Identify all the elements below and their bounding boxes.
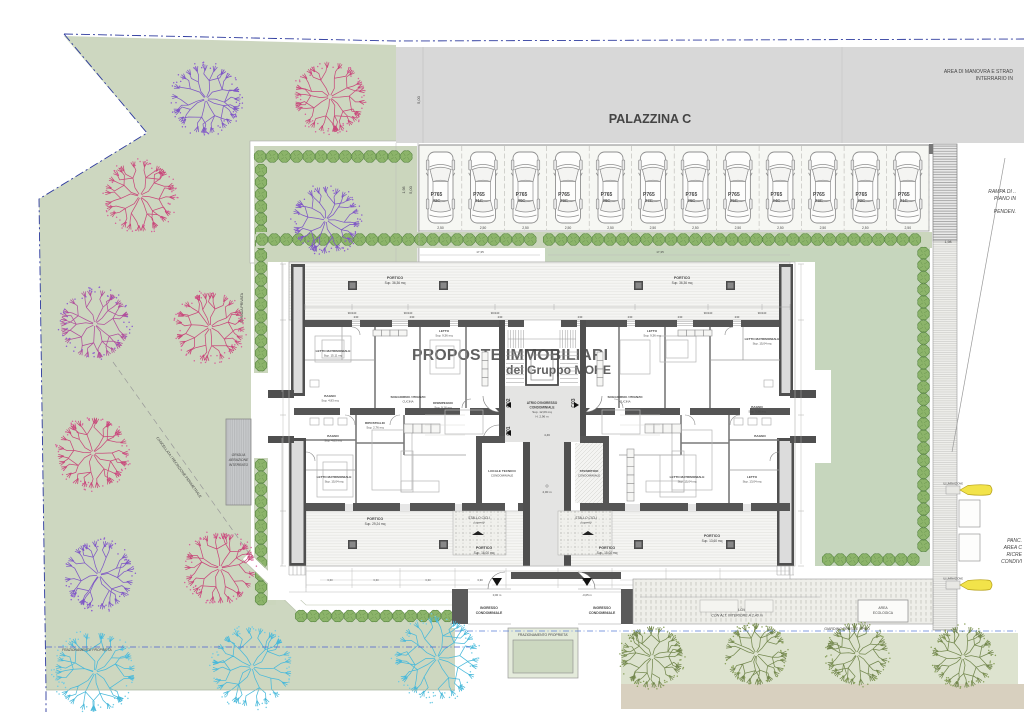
svg-text:1,98: 1,98 (402, 187, 406, 194)
svg-text:Sup. 13,04 mq: Sup. 13,04 mq (743, 479, 762, 483)
svg-text:Sup. 29,24 mq: Sup. 29,24 mq (365, 522, 386, 526)
svg-text:230: 230 (354, 315, 359, 319)
svg-text:27C: 27C (645, 198, 653, 203)
svg-text:230: 230 (410, 315, 415, 319)
svg-text:90/240: 90/240 (704, 311, 713, 315)
svg-text:PIANO IN: PIANO IN (994, 196, 1016, 202)
svg-text:PORTICO: PORTICO (367, 517, 384, 521)
svg-text:GIARDINO PENSILE SPILO: GIARDINO PENSILE SPILO (824, 627, 870, 631)
svg-text:2,50: 2,50 (437, 226, 444, 230)
svg-text:230: 230 (498, 315, 503, 319)
svg-text:0,00 m: 0,00 m (493, 593, 502, 597)
svg-text:CONDOMINIALE: CONDOMINIALE (530, 406, 555, 410)
svg-text:22C: 22C (857, 198, 865, 203)
svg-text:AERAZIONE: AERAZIONE (228, 458, 249, 462)
svg-text:2,50: 2,50 (692, 226, 699, 230)
svg-text:INGRESSO: INGRESSO (480, 606, 498, 610)
svg-text:CUCINA: CUCINA (402, 399, 413, 403)
svg-text:FRAZIONAMENTO PROPRIETA': FRAZIONAMENTO PROPRIETA' (518, 633, 569, 637)
svg-text:230: 230 (735, 315, 740, 319)
svg-text:(coperti): (coperti) (473, 521, 484, 525)
svg-text:(coperti): (coperti) (580, 521, 591, 525)
svg-text:PANC.: PANC. (1007, 538, 1022, 544)
svg-text:PORTICO: PORTICO (476, 546, 493, 550)
svg-text:26C: 26C (688, 198, 696, 203)
svg-text:Sup. 15,11 mq: Sup. 15,11 mq (324, 353, 343, 357)
svg-text:CONDOMINIALE: CONDOMINIALE (589, 611, 616, 615)
svg-text:5,00: 5,00 (408, 185, 413, 194)
svg-text:4,46: 4,46 (544, 433, 550, 437)
svg-text:RAMPA DI ..: RAMPA DI .. (988, 189, 1016, 195)
svg-text:90/240: 90/240 (404, 311, 413, 315)
svg-text:Sup. 3,96 mq: Sup. 3,96 mq (748, 409, 766, 413)
svg-text:PALAZZINA C: PALAZZINA C (609, 112, 692, 126)
svg-text:Sup. 36,36 mq: Sup. 36,36 mq (385, 281, 406, 285)
svg-text:2,50: 2,50 (904, 226, 911, 230)
svg-text:CON ALT. INTERIORE A 2,40 m: CON ALT. INTERIORE A 2,40 m (711, 614, 763, 618)
svg-text:230: 230 (628, 315, 633, 319)
svg-text:Sup. 9,16 mq: Sup. 9,16 mq (434, 405, 452, 409)
svg-text:Sup. 15,04 mq: Sup. 15,04 mq (753, 341, 772, 345)
svg-text:FRAZIONAMENTO PROPRIETA: FRAZIONAMENTO PROPRIETA (62, 648, 112, 652)
svg-text:2,50: 2,50 (522, 226, 529, 230)
svg-text:5,00: 5,00 (416, 95, 421, 104)
svg-text:3,30: 3,30 (477, 578, 483, 582)
svg-text:CONDOMINIALE: CONDOMINIALE (476, 611, 503, 615)
svg-text:BAGNO: BAGNO (754, 434, 766, 438)
svg-text:23C: 23C (815, 198, 823, 203)
svg-text:230: 230 (578, 315, 583, 319)
svg-text:17,35: 17,35 (656, 250, 664, 254)
svg-text:25C: 25C (730, 198, 738, 203)
svg-text:Sup. 12,09 mq: Sup. 12,09 mq (532, 410, 552, 414)
svg-text:STALLO CICLI: STALLO CICLI (575, 516, 597, 520)
svg-text:RICRE: RICRE (1006, 552, 1022, 558)
svg-text:2,50: 2,50 (650, 226, 657, 230)
svg-text:Sup. 15,00 mq: Sup. 15,00 mq (597, 551, 618, 555)
svg-text:Sup. 16,00 mq: Sup. 16,00 mq (474, 551, 495, 555)
svg-text:21C: 21C (900, 198, 908, 203)
svg-text:29C: 29C (560, 198, 568, 203)
svg-text:CONDOMINIALE: CONDOMINIALE (578, 473, 600, 477)
svg-text:17,35: 17,35 (476, 250, 484, 254)
svg-text:Sup. 2,76 mq: Sup. 2,76 mq (366, 425, 384, 429)
svg-text:2,50: 2,50 (820, 226, 827, 230)
svg-text:2,50: 2,50 (735, 226, 742, 230)
svg-text:CONDOMINIALE: CONDOMINIALE (491, 473, 513, 477)
svg-text:2,50: 2,50 (565, 226, 572, 230)
svg-text:Sup. 4,93 mq: Sup. 4,93 mq (321, 398, 339, 402)
svg-text:Sup. 36,36 mq: Sup. 36,36 mq (672, 281, 693, 285)
svg-text:INTERRARIO IN: INTERRARIO IN (976, 76, 1014, 82)
svg-text:PORTICO: PORTICO (599, 546, 616, 550)
svg-text:PENDEN.: PENDEN. (994, 209, 1016, 215)
svg-text:90/240: 90/240 (348, 311, 357, 315)
svg-text:PORTICO: PORTICO (704, 534, 721, 538)
svg-text:Sup. 4,63 mq: Sup. 4,63 mq (324, 438, 342, 442)
svg-text:AREA C: AREA C (1003, 545, 1023, 551)
svg-text:CONDIVI: CONDIVI (1001, 559, 1022, 565)
svg-text:Sup. 13,60 mq: Sup. 13,60 mq (702, 539, 723, 543)
svg-text:2,50: 2,50 (862, 226, 869, 230)
svg-text:1,98: 1,98 (945, 240, 952, 244)
svg-text:INTERRATO: INTERRATO (229, 463, 249, 467)
svg-text:24C: 24C (773, 198, 781, 203)
svg-text:PORTICO: PORTICO (674, 276, 691, 280)
svg-text:Sup. 9,36 mq: Sup. 9,36 mq (435, 333, 453, 337)
svg-text:AREA DI MANOVRA E STRAD: AREA DI MANOVRA E STRAD (944, 69, 1014, 75)
svg-text:Sup. 15,04 mq: Sup. 15,04 mq (678, 479, 697, 483)
svg-text:H. 2,96 m: H. 2,96 m (535, 415, 549, 419)
svg-text:PROPOSTE IMMOBILIARI: PROPOSTE IMMOBILIARI (412, 347, 608, 364)
svg-text:-0,05 m: -0,05 m (582, 593, 592, 597)
svg-text:STALLO CICLI: STALLO CICLI (468, 516, 490, 520)
svg-text:ILLUMINAZIONE: ILLUMINAZIONE (943, 577, 963, 581)
svg-text:ECOLOGICA: ECOLOGICA (873, 611, 894, 615)
svg-text:ILLUMINAZIONE: ILLUMINAZIONE (943, 482, 963, 486)
svg-text:ATRIO D'INGRESSO: ATRIO D'INGRESSO (527, 401, 558, 405)
svg-text:AREA: AREA (878, 606, 888, 610)
svg-text:GRIGLIA: GRIGLIA (232, 453, 246, 457)
svg-text:30C: 30C (518, 198, 526, 203)
svg-text:INGRESSO: INGRESSO (593, 606, 611, 610)
svg-text:Sup. 15,04 mq: Sup. 15,04 mq (325, 479, 344, 483)
svg-text:PORTICO: PORTICO (387, 276, 404, 280)
svg-text:2,50: 2,50 (480, 226, 487, 230)
svg-text:4,00 m: 4,00 m (542, 490, 552, 494)
svg-text:28C: 28C (603, 198, 611, 203)
svg-text:230: 230 (678, 315, 683, 319)
svg-text:32C: 32C (433, 198, 441, 203)
svg-text:2,50: 2,50 (607, 226, 614, 230)
svg-text:90/240: 90/240 (491, 311, 500, 315)
svg-text:Sup. 9,36 mq: Sup. 9,36 mq (643, 333, 661, 337)
svg-text:2,50: 2,50 (777, 226, 784, 230)
svg-text:CUCINA: CUCINA (619, 399, 630, 403)
svg-text:90/240: 90/240 (758, 311, 767, 315)
svg-text:31C: 31C (475, 198, 483, 203)
